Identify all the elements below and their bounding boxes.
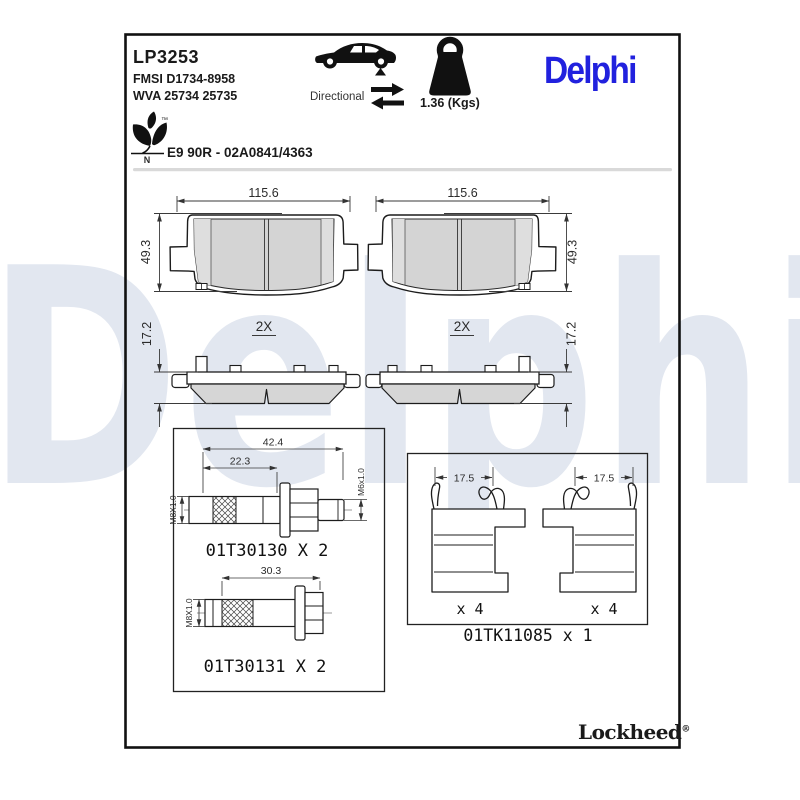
bolt1-main-thread: M8X1.0 <box>168 495 178 525</box>
directional-arrows-icon <box>371 83 404 110</box>
bolt2-drawing <box>197 586 332 640</box>
clip-width-dim-right: 17.5 <box>594 473 615 485</box>
pad-front-right-drawing <box>368 215 556 295</box>
bolt2-main-thread: M8X1.0 <box>184 598 194 628</box>
header-separator <box>133 168 672 171</box>
directional-label: Directional <box>310 91 364 103</box>
pad-side-height-dim-right: 17.2 <box>565 322 579 346</box>
lockheed-wordmark: Lockheed <box>578 720 681 744</box>
pad-side-qty-right: 2X <box>454 319 471 334</box>
bolt1-tip-thread: M6x1.0 <box>356 468 366 496</box>
clip-left-drawing <box>431 483 525 592</box>
clip-width-dim-left: 17.5 <box>454 473 475 485</box>
pad-side-right-drawing <box>366 357 554 404</box>
datasheet-page: Delphi <box>0 0 800 800</box>
pad-width-dim-right: 115.6 <box>447 186 477 200</box>
bolt2-part-number: 01T30131 X 2 <box>204 657 327 677</box>
bolt1-drawing <box>184 483 352 537</box>
pad-height-dim-right: 49.3 <box>566 240 580 264</box>
eco-trademark: ™ <box>161 117 168 124</box>
eco-mark-letter: N <box>144 155 151 165</box>
bolt2-total-length: 30.3 <box>261 565 282 577</box>
clip-qty-right: x 4 <box>590 600 617 618</box>
weight-value: 1.36 (Kgs) <box>420 96 480 110</box>
lockheed-logo: Lockheed® <box>578 720 690 744</box>
bolt1-total-length: 42.4 <box>263 437 284 449</box>
pad-width-dim-left: 115.6 <box>248 186 278 200</box>
wva-reference: WVA 25734 25735 <box>133 89 237 103</box>
pad-side-qty-left: 2X <box>256 319 273 334</box>
clip-kit-part-number: 01TK11085 x 1 <box>463 626 592 645</box>
pad-height-dim-left: 49.3 <box>139 240 153 264</box>
directional-car-icon <box>315 43 396 76</box>
weight-icon <box>429 40 471 96</box>
technical-drawing-canvas: N ™ 115.6 115.6 49.3 49.3 <box>0 0 800 800</box>
pad-front-left-drawing <box>170 215 358 295</box>
product-code: LP3253 <box>133 47 199 68</box>
pad-side-height-dim-left: 17.2 <box>140 322 154 346</box>
ece-approval-number: E9 90R - 02A0841/4363 <box>167 145 313 160</box>
bolt1-part-number: 01T30130 X 2 <box>206 541 329 561</box>
wheel-position-marker <box>375 68 386 76</box>
clip-qty-left: x 4 <box>456 600 483 618</box>
fmsi-reference: FMSI D1734-8958 <box>133 72 235 86</box>
bolt1-partial-length: 22.3 <box>230 456 251 468</box>
eco-leaf-icon: N ™ <box>131 112 168 166</box>
registered-mark: ® <box>681 724 690 734</box>
clip-right-drawing <box>543 483 637 592</box>
pad-side-left-drawing <box>172 357 360 404</box>
delphi-logo: Delphi <box>544 50 636 93</box>
